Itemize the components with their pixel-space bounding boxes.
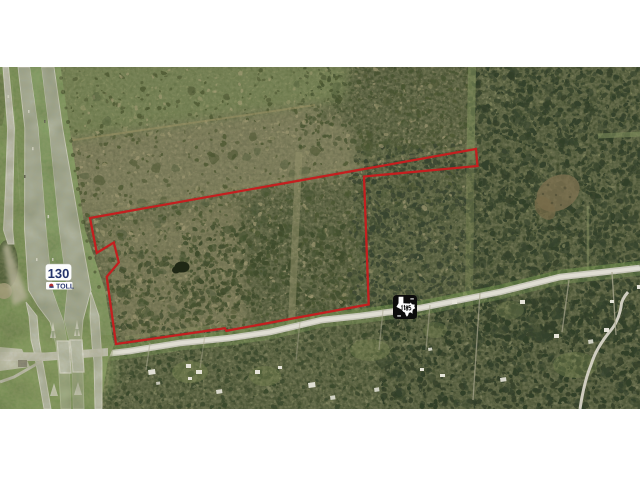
- svg-text:TOLL: TOLL: [56, 284, 75, 291]
- svg-text:130: 130: [48, 266, 70, 281]
